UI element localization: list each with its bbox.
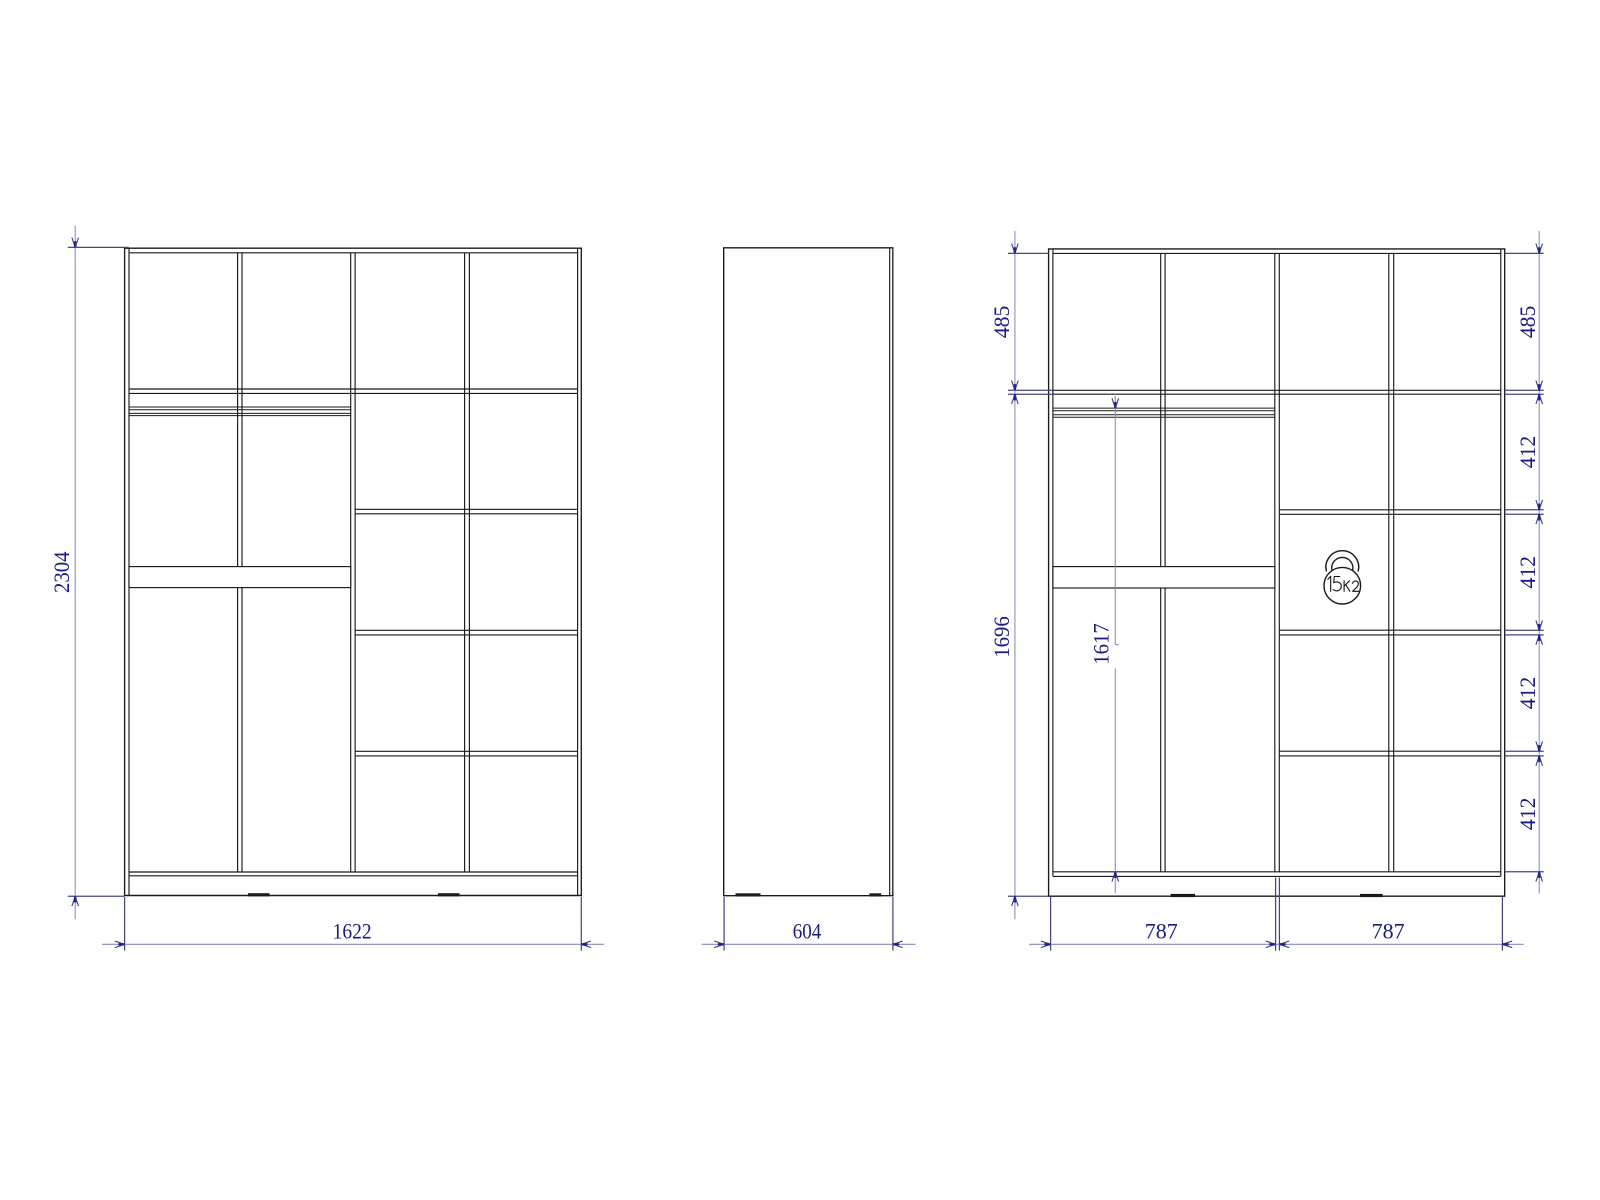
svg-text:412: 412	[1515, 436, 1540, 469]
svg-text:787: 787	[1145, 919, 1178, 944]
svg-text:787: 787	[1372, 919, 1405, 944]
svg-text:485: 485	[989, 306, 1014, 339]
svg-text:604: 604	[793, 919, 822, 944]
svg-text:1622: 1622	[333, 919, 372, 944]
svg-text:412: 412	[1515, 677, 1540, 710]
svg-text:1696: 1696	[989, 616, 1014, 658]
svg-text:412: 412	[1515, 556, 1540, 589]
svg-text:2304: 2304	[49, 552, 74, 594]
svg-text:485: 485	[1515, 306, 1540, 339]
svg-text:1617: 1617	[1089, 623, 1114, 665]
svg-text:412: 412	[1515, 798, 1540, 831]
